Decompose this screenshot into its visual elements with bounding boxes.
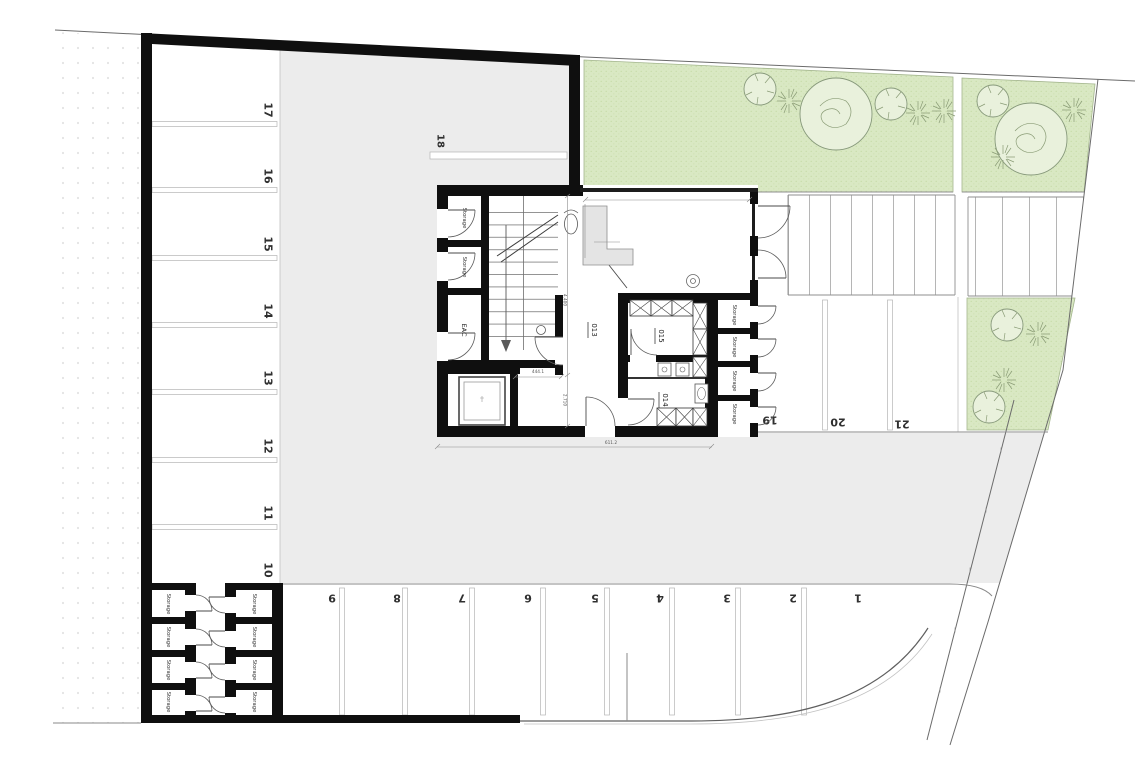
room-label-storage: Storage — [165, 692, 171, 713]
room-label-storage: Storage — [165, 627, 171, 648]
parking-space-label-17: 17 — [262, 102, 275, 117]
parking-column-left: 17 16 15 14 13 12 11 10 — [152, 50, 280, 583]
parking-row-bottom: 9 8 7 6 5 4 3 2 1 — [280, 584, 992, 715]
parking-space-label-4: 4 — [656, 592, 664, 605]
site-plan: 9 8 7 6 5 4 3 2 1 17 16 15 14 13 12 11 1… — [0, 0, 1135, 761]
parking-space-label-20: 20 — [830, 416, 846, 429]
building: Storage Storage EAC 013 015 014 Storage … — [435, 185, 790, 449]
room-label-storage: Storage — [731, 337, 737, 358]
staircase — [489, 196, 558, 352]
room-label-storage: Storage — [251, 627, 257, 648]
room-label-storage: Storage — [251, 660, 257, 681]
parking-space-label-5: 5 — [591, 592, 599, 605]
parking-space-label-1: 1 — [854, 592, 862, 605]
tree-icon — [977, 85, 1009, 117]
parking-space-label-10: 10 — [262, 562, 275, 578]
dimension-label: 444.1 — [532, 369, 545, 375]
room-label-storage: Storage — [461, 257, 467, 278]
dimension-label: 2.710 — [562, 394, 568, 407]
tree-icon — [995, 103, 1067, 175]
paving-band-right — [968, 197, 1084, 296]
parking-space-label-13: 13 — [262, 370, 275, 385]
room-label-storage: Storage — [251, 692, 257, 713]
tree-icon — [800, 78, 872, 150]
parking-space-label-21: 21 — [894, 418, 909, 431]
tree-icon — [991, 309, 1023, 341]
parking-space-label-15: 15 — [262, 236, 275, 251]
room-label-014: 014 — [661, 393, 669, 407]
dimension-label: 4.400 — [562, 294, 568, 307]
room-label-013: 013 — [590, 323, 598, 336]
paving-band-left — [788, 195, 955, 295]
parking-space-label-12: 12 — [262, 438, 275, 453]
parking-space-label-3: 3 — [723, 592, 731, 605]
parking-space-label-11: 11 — [262, 505, 275, 520]
tree-icon — [875, 88, 907, 120]
room-label-storage: Storage — [251, 594, 257, 615]
parking-space-label-6: 6 — [524, 592, 532, 605]
room-label-storage: Storage — [461, 208, 467, 229]
room-label-015: 015 — [657, 329, 665, 342]
road-edge — [520, 628, 932, 724]
room-label-storage: Storage — [165, 660, 171, 681]
parking-space-label-18: 18 — [435, 134, 446, 148]
room-label-storage: Storage — [731, 305, 737, 326]
parking-space-label-2: 2 — [789, 592, 797, 605]
sink — [695, 384, 708, 403]
tree-icon — [973, 391, 1005, 423]
parking-space-label-14: 14 — [262, 303, 275, 319]
storage-block: Storage Storage Storage Storage Storage … — [141, 583, 283, 715]
verge-dotted-strip — [53, 32, 141, 723]
room-label-storage: Storage — [165, 594, 171, 615]
dimension-label: 611.2 — [605, 440, 618, 446]
parking-space-label-8: 8 — [393, 592, 401, 605]
room-label-storage: Storage — [731, 371, 737, 392]
tree-icon — [744, 73, 776, 105]
room-label-eac: EAC — [460, 324, 468, 337]
room-label-storage: Storage — [731, 404, 737, 425]
parking-space-label-7: 7 — [458, 592, 466, 605]
parking-space-label-9: 9 — [328, 592, 336, 605]
parking-space-label-16: 16 — [262, 168, 275, 184]
